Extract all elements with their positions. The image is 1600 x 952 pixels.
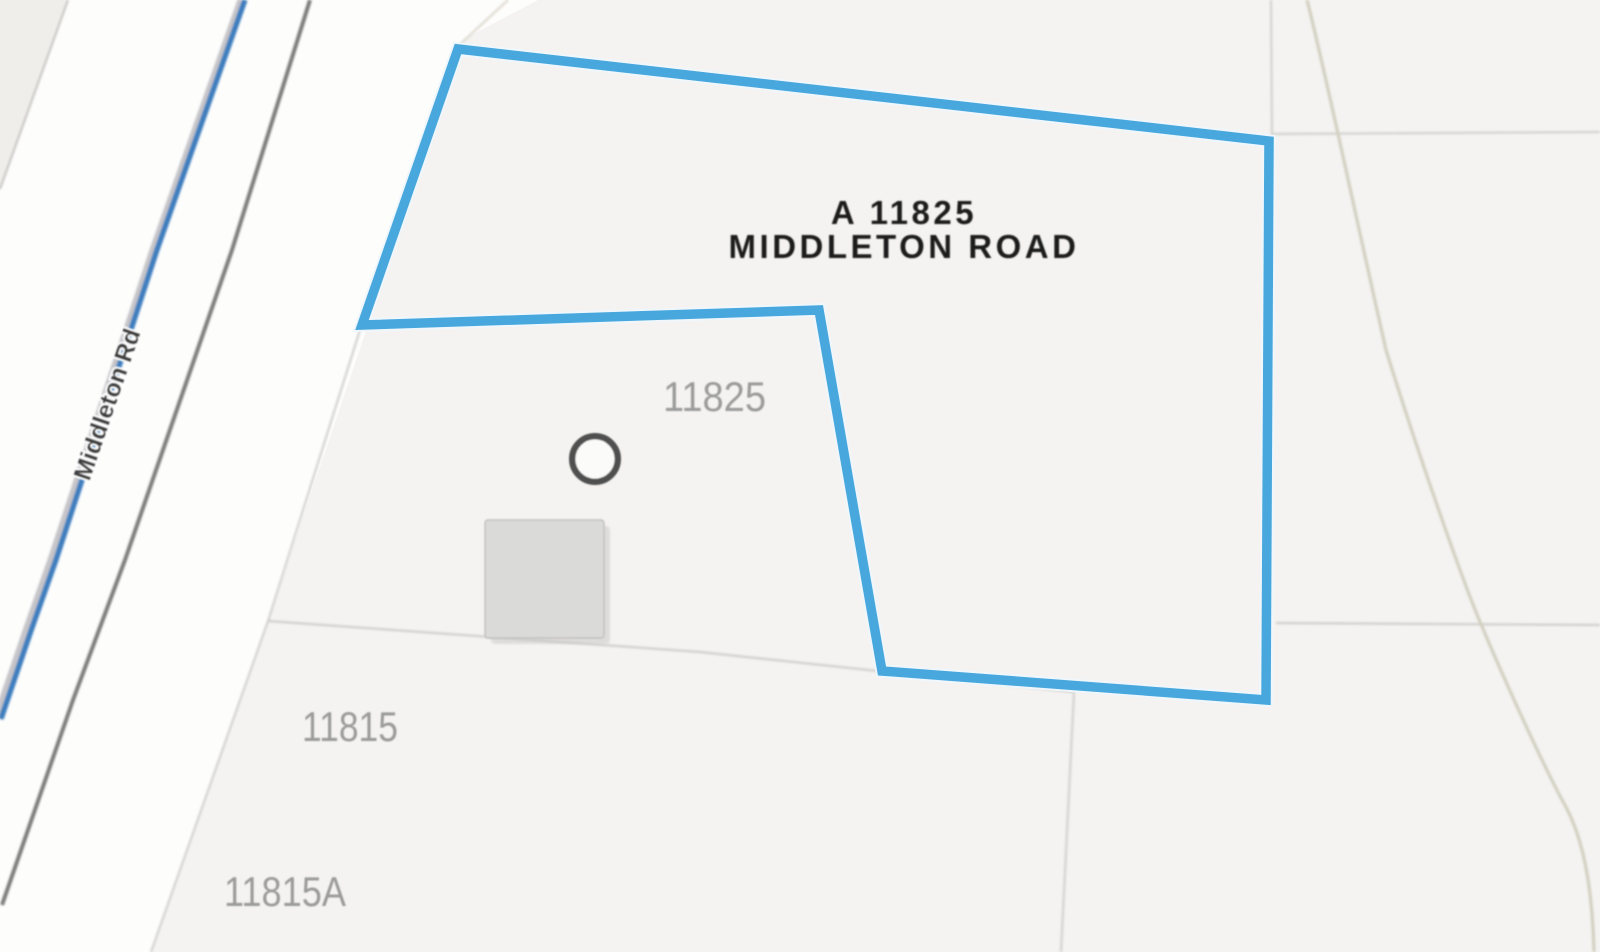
svg-text:11815A: 11815A: [224, 868, 346, 915]
svg-text:11825: 11825: [663, 373, 766, 420]
svg-text:11815: 11815: [302, 703, 398, 750]
svg-text:A 11825: A 11825: [831, 194, 977, 231]
svg-text:MIDDLETON ROAD: MIDDLETON ROAD: [729, 228, 1080, 265]
